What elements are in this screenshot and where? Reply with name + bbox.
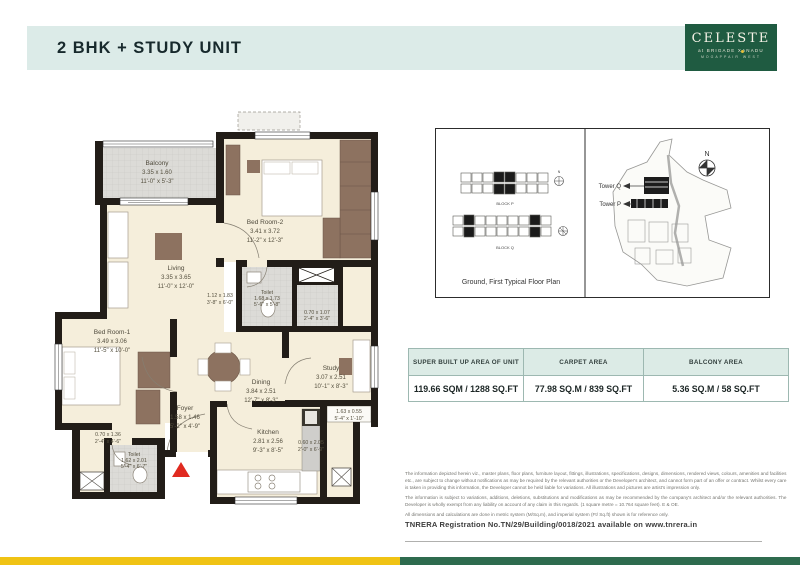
brochure-page: 2 BHK + STUDY UNIT CELESTE at BRIGADE XA… xyxy=(0,0,800,566)
area-table: SUPER BUILT UP AREA OF UNIT CARPET AREA … xyxy=(408,348,789,402)
page-title: 2 BHK + STUDY UNIT xyxy=(57,26,242,70)
block-q-label: BLOCK Q xyxy=(496,245,514,250)
keyplan-caption: Ground, First Typical Floor Plan xyxy=(462,279,560,286)
wash-box xyxy=(332,468,351,486)
footer-bar-green xyxy=(400,557,800,565)
svg-text:2'-4" x 4'-6": 2'-4" x 4'-6" xyxy=(95,439,121,445)
value-carpet: 77.98 SQ.M / 839 SQ.FT xyxy=(524,376,644,402)
disclaimer-p1: The information depicted herein viz., ma… xyxy=(405,471,786,492)
disclaimer-p3: All dimensions and calculations are done… xyxy=(405,512,786,519)
svg-text:0.70 x 1.36: 0.70 x 1.36 xyxy=(95,432,121,438)
svg-text:Study: Study xyxy=(323,365,340,372)
divider-line xyxy=(405,541,762,542)
svg-text:Bed Room-1: Bed Room-1 xyxy=(94,329,131,336)
svg-text:Balcony: Balcony xyxy=(145,160,169,167)
mini-compass-q-icon xyxy=(559,227,568,236)
logo-location: MOGAPPAIR WEST xyxy=(685,55,777,59)
svg-text:N: N xyxy=(704,151,709,158)
footer-bar-yellow xyxy=(0,557,400,565)
logo-wordmark: CELESTE xyxy=(685,32,777,46)
center-table xyxy=(155,233,182,260)
svg-text:Living: Living xyxy=(168,265,185,272)
key-plan: BLOCK P N BLOCK Q xyxy=(435,128,770,298)
svg-text:9'-3" x 8'-5": 9'-3" x 8'-5" xyxy=(253,448,283,454)
svg-text:2'-4" x 3'-6": 2'-4" x 3'-6" xyxy=(304,316,330,322)
svg-text:5'-4" x 6'-7": 5'-4" x 6'-7" xyxy=(121,464,147,470)
svg-text:11'-2" x 12'-3": 11'-2" x 12'-3" xyxy=(247,238,283,244)
svg-text:Kitchen: Kitchen xyxy=(257,429,279,436)
sofa-1 xyxy=(108,212,128,258)
svg-text:1.63 x 0.55: 1.63 x 0.55 xyxy=(336,409,362,415)
brand-logo: CELESTE at BRIGADE XANADU MOGAPPAIR WEST xyxy=(685,24,777,71)
sofa-2 xyxy=(108,262,128,308)
svg-text:5'-4" x 1'-10": 5'-4" x 1'-10" xyxy=(334,416,363,422)
svg-text:2.81 x 2.56: 2.81 x 2.56 xyxy=(253,439,283,445)
study-chair xyxy=(339,358,352,375)
room-label-niche: 0.70 x 1.36 2'-4" x 4'-6" xyxy=(95,432,121,445)
svg-text:3.07 x 2.51: 3.07 x 2.51 xyxy=(316,375,346,381)
rera-registration: TNRERA Registration No.TN/29/Building/00… xyxy=(405,520,697,529)
svg-text:Foyer: Foyer xyxy=(177,405,194,412)
svg-text:3'-8" x 6'-0": 3'-8" x 6'-0" xyxy=(207,300,233,306)
svg-text:10'-1" x 8'-3": 10'-1" x 8'-3" xyxy=(314,384,348,390)
svg-text:5'-2" x 4'-9": 5'-2" x 4'-9" xyxy=(170,424,200,430)
ac-ledge xyxy=(238,112,300,130)
logo-subtitle: at BRIGADE XANADU xyxy=(685,48,777,53)
stove xyxy=(248,472,300,492)
room-label-ledge: 1.63 x 0.55 5'-4" x 1'-10" xyxy=(334,409,363,422)
svg-text:Bed Room-2: Bed Room-2 xyxy=(247,219,284,226)
disclaimer: The information depicted herein viz., ma… xyxy=(405,471,786,522)
svg-text:2'-0" x 6'-9": 2'-0" x 6'-9" xyxy=(298,447,324,453)
svg-text:Dining: Dining xyxy=(252,379,271,386)
svg-text:3.49 x 3.06: 3.49 x 3.06 xyxy=(97,339,127,345)
toilet2-basin xyxy=(247,272,261,283)
lift-shaft xyxy=(295,265,338,285)
tower-p-label: Tower P xyxy=(599,202,621,208)
study-desk xyxy=(353,340,370,392)
bed2-wardrobe xyxy=(226,145,240,195)
svg-text:12'-7" x 8'-3": 12'-7" x 8'-3" xyxy=(244,398,278,404)
bed1-dresser xyxy=(136,390,160,424)
block-p-label: BLOCK P xyxy=(496,201,514,206)
svg-text:3.35 x 1.60: 3.35 x 1.60 xyxy=(142,170,172,176)
value-balcony: 5.36 SQ.M / 58 SQ.FT xyxy=(644,376,789,402)
svg-text:1.58 x 1.46: 1.58 x 1.46 xyxy=(170,415,200,421)
room-label-bed2: Bed Room-2 3.41 x 3.72 11'-2" x 12'-3" xyxy=(247,219,284,244)
room-label-passage: 1.12 x 1.83 3'-8" x 6'-0" xyxy=(207,293,233,306)
value-sbua: 119.66 SQM / 1288 SQ.FT xyxy=(409,376,524,402)
svg-text:5'-6" x 5'-8": 5'-6" x 5'-8" xyxy=(254,302,280,308)
shower-box xyxy=(80,472,104,490)
floorplan-drawing: Balcony 3.35 x 1.60 11'-0" x 5'-3" Livin… xyxy=(40,100,400,520)
bed1-wardrobe xyxy=(138,352,170,388)
svg-text:1.12 x 1.83: 1.12 x 1.83 xyxy=(207,293,233,299)
bed2-side-table xyxy=(247,160,260,173)
room-label-bed1: Bed Room-1 3.49 x 3.06 11'-5" x 10'-0" xyxy=(94,329,131,354)
tower-q-building xyxy=(644,177,669,194)
disclaimer-p2: The information is subject to variations… xyxy=(405,495,786,509)
room-label-shaft: 0.70 x 1.07 2'-4" x 3'-6" xyxy=(304,310,330,322)
dining-table xyxy=(206,350,240,384)
bed2-dresser xyxy=(323,218,340,258)
svg-text:11'-5" x 10'-0": 11'-5" x 10'-0" xyxy=(94,348,130,354)
svg-text:3.35 x 3.65: 3.35 x 3.65 xyxy=(161,275,191,281)
svg-text:11'-0" x 12'-0": 11'-0" x 12'-0" xyxy=(158,284,194,290)
svg-text:11'-0" x 5'-3": 11'-0" x 5'-3" xyxy=(140,179,173,185)
svg-text:3.41 x 3.72: 3.41 x 3.72 xyxy=(250,229,280,235)
col-header-sbua: SUPER BUILT UP AREA OF UNIT xyxy=(409,349,524,376)
tower-p-building xyxy=(631,199,668,208)
col-header-carpet: CARPET AREA xyxy=(524,349,644,376)
svg-text:3.84 x 2.51: 3.84 x 2.51 xyxy=(246,389,276,395)
col-header-balcony: BALCONY AREA xyxy=(644,349,789,376)
leaf-dot-icon xyxy=(741,50,744,53)
tower-q-label: Tower Q xyxy=(599,184,622,190)
entrance-arrow-icon xyxy=(172,462,190,477)
wardrobe-nook xyxy=(340,140,371,258)
svg-text:0.60 x 2.05: 0.60 x 2.05 xyxy=(298,440,324,446)
room-label-utility: 0.60 x 2.05 2'-0" x 6'-9" xyxy=(298,440,324,453)
